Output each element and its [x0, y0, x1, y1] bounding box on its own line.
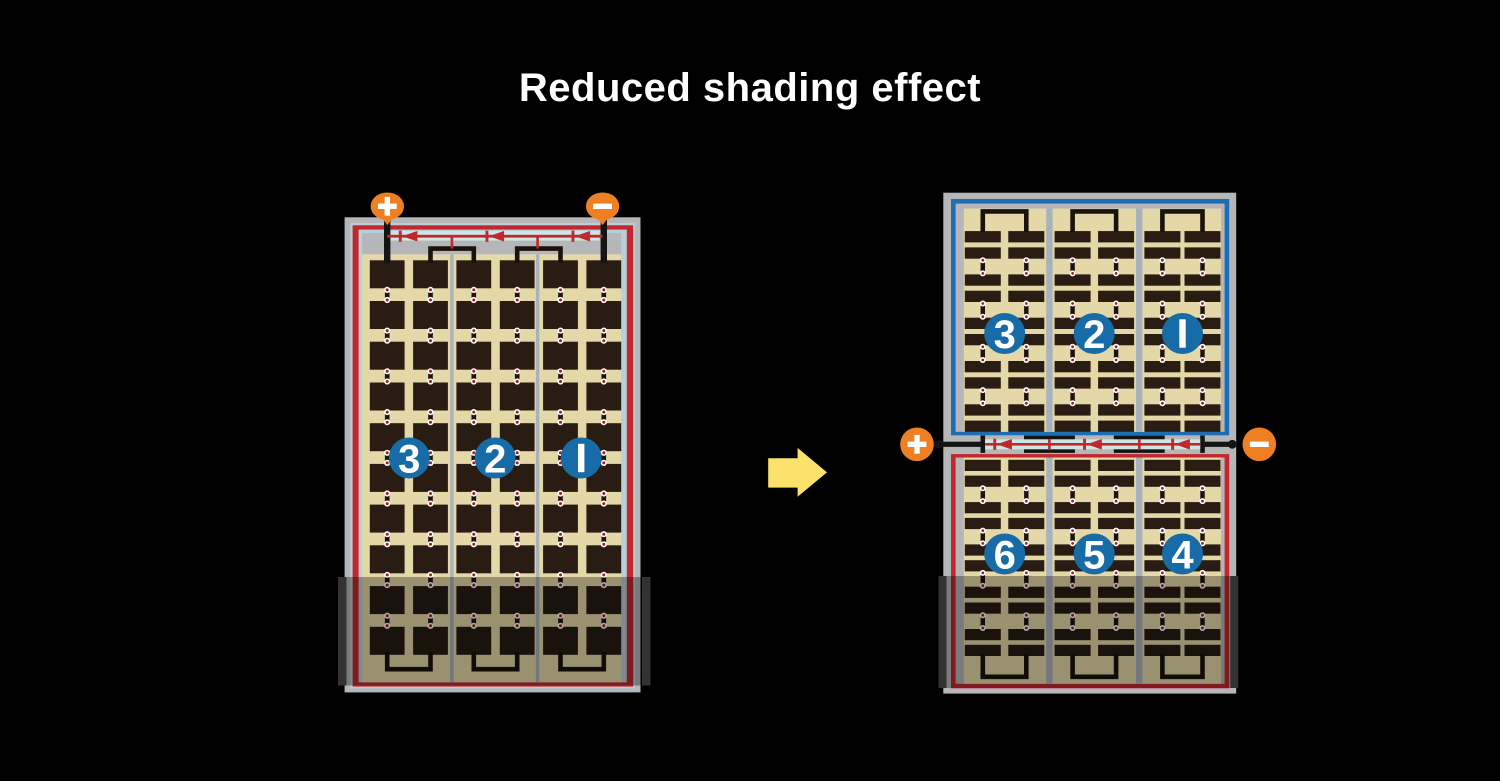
svg-text:2: 2: [484, 437, 506, 481]
svg-text:6: 6: [994, 533, 1016, 577]
svg-text:2: 2: [1083, 313, 1105, 357]
svg-text:5: 5: [1083, 533, 1105, 577]
svg-text:3: 3: [398, 437, 420, 481]
svg-text:3: 3: [994, 313, 1016, 357]
svg-text:4: 4: [1171, 533, 1194, 577]
